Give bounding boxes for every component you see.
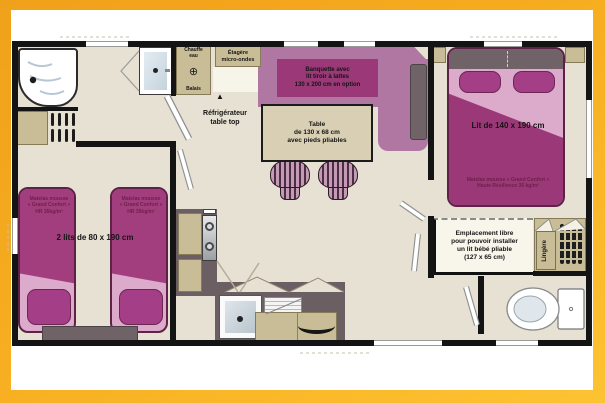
closet-hanger-rail [560, 224, 564, 264]
nightstand [565, 47, 585, 63]
water-heater-closet: Chauffe eau ⊕ Balais [176, 44, 211, 95]
wall-master-bedroom-upper [428, 44, 434, 180]
window [374, 340, 442, 346]
baby-bed-area: Emplacement libre pour pouvoir installer… [432, 218, 533, 275]
wall-right [586, 41, 592, 346]
window [586, 100, 592, 178]
twin-mattress-label: Matelas mousse « Grand Confort » HR 35kg… [115, 196, 167, 215]
bathtub [18, 48, 78, 107]
closet-hanger-rail [578, 224, 582, 264]
wall-bathroom-bedroom [76, 141, 176, 147]
wall-wc [478, 276, 484, 334]
bed-cushion [459, 71, 501, 93]
wall-master-bedroom-lower [428, 216, 434, 278]
heater-valve-icon: ⊕ [189, 67, 198, 78]
twin-bed-right: Matelas mousse « Grand Confort » HR 35kg… [110, 187, 168, 333]
microwave-shelf-label: Étagère micro-ondes [221, 50, 254, 64]
master-pillows [449, 49, 565, 69]
twin-beds-label: 2 lits de 80 x 190 cm [22, 233, 168, 243]
table-label: Table de 130 x 68 cm avec pieds pliables [287, 121, 346, 145]
baby-bed-label: Emplacement libre pour pouvoir installer… [451, 230, 518, 263]
window [86, 41, 128, 47]
banquette-mattress: Banquette avec lit tiroir à lattes 130 x… [277, 59, 378, 97]
window [284, 41, 318, 47]
fridge-arrow-icon: ▲ [216, 93, 224, 101]
window [344, 41, 375, 47]
spice-rack [203, 209, 216, 214]
mobile-home-floor-plan: Chauffe eau ⊕ Balais Étagère micro-ondes… [0, 0, 605, 403]
linen-closet-label: Lingère [542, 240, 550, 262]
bed-cushion [513, 71, 555, 93]
master-bed-label: Lit de 140 x 190 cm [449, 121, 565, 131]
bathroom-wardrobe-rails [48, 111, 78, 145]
twin-bed-left: Matelas mousse « Grand Confort » HR 35kg… [18, 187, 76, 333]
dining-chair [270, 159, 310, 201]
wall-right-of-shower [171, 44, 176, 96]
bathroom-cabinet [16, 111, 48, 145]
wall-twin-bedroom [170, 141, 176, 346]
banquette-label: Banquette avec lit tiroir à lattes 130 x… [295, 67, 361, 90]
dining-chair [318, 159, 358, 201]
closet-hanger-rail [566, 224, 570, 264]
burner-icon [205, 222, 214, 231]
twin-mattress-label: Matelas mousse « Grand Confort » HR 35kg… [23, 196, 75, 215]
burner-icon [205, 242, 214, 251]
broom-label: Balais [186, 86, 201, 92]
window [12, 218, 18, 254]
master-mattress-label: Matelas mousse « Grand Confort » Haute R… [453, 177, 563, 190]
stove [202, 215, 217, 261]
dining-table: Table de 130 x 68 cm avec pieds pliables [261, 104, 373, 162]
shower-washbasin-unit [139, 47, 172, 95]
water-heater-label: Chauffe eau [184, 47, 203, 60]
cabinet-open-door-arc [298, 316, 335, 334]
wall-under-tub [14, 107, 78, 111]
fridge-spot [213, 67, 261, 92]
kitchen-cabinet [178, 213, 202, 255]
wall-left [12, 41, 18, 346]
bed-cushion [27, 289, 71, 325]
bed-cushion [119, 289, 163, 325]
closet-hanger-rail [572, 224, 576, 264]
fridge-label: Réfrigérateur table top [186, 110, 264, 128]
master-bed: Lit de 140 x 190 cm Matelas mousse « Gra… [447, 47, 565, 207]
kitchen-cabinet [178, 259, 202, 292]
window [484, 41, 522, 47]
microwave-shelf: Étagère micro-ondes [215, 46, 261, 67]
window [496, 340, 538, 346]
banquette-gray-cushion [410, 64, 427, 140]
wall-under-closet [533, 271, 586, 276]
linen-closet-label-box: Lingère [536, 231, 556, 270]
